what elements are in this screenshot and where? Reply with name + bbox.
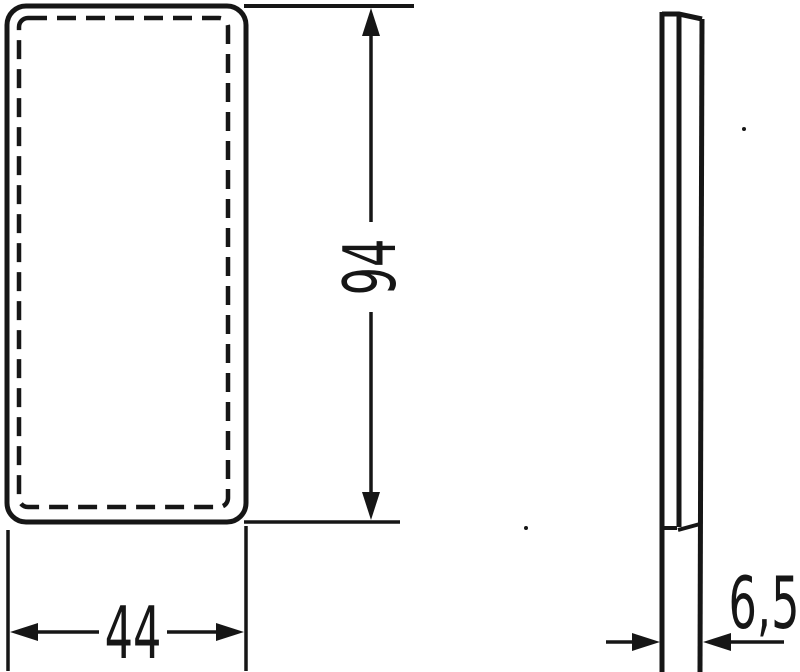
scan-speck bbox=[524, 526, 528, 530]
dim-label-depth: 6,5 bbox=[729, 562, 800, 646]
side-back-face-line bbox=[700, 19, 702, 672]
dim-arrowhead-left-inward bbox=[703, 633, 731, 651]
dim-arrowhead-up bbox=[362, 8, 380, 36]
technical-drawing-canvas: 94 44 6,5 bbox=[0, 0, 800, 672]
dim-arrowhead-left bbox=[10, 623, 38, 641]
drawing-page: 94 44 6,5 bbox=[0, 0, 800, 672]
height-dimension: 94 bbox=[244, 6, 414, 522]
part-outer-outline bbox=[7, 6, 246, 522]
dim-arrowhead-right-inward bbox=[632, 633, 660, 651]
scan-speck bbox=[742, 127, 746, 131]
side-view bbox=[660, 12, 702, 672]
side-top-edge bbox=[662, 14, 702, 19]
dim-arrowhead-right bbox=[216, 623, 244, 641]
dim-arrowhead-down bbox=[362, 492, 380, 520]
dim-label-height: 94 bbox=[329, 239, 413, 296]
width-dimension: 44 bbox=[8, 526, 246, 672]
front-view bbox=[7, 6, 246, 522]
dim-label-width: 44 bbox=[105, 592, 162, 672]
reflector-dashed-outline bbox=[19, 18, 228, 507]
